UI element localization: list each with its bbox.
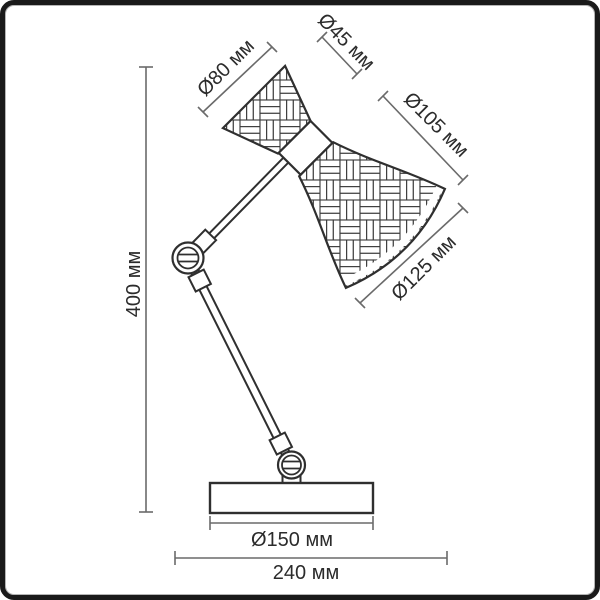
elbow-screw-icon: [178, 248, 199, 269]
dimension-neck: Ø45 мм: [313, 9, 379, 79]
lamp-arm: [185, 158, 295, 467]
dimension-label-depth: 240 мм: [273, 562, 339, 584]
dimension-depth: 240 мм: [175, 551, 447, 584]
drawing-canvas: 400 мм Ø80 мм Ø45 мм Ø105 мм: [0, 0, 600, 600]
dimension-label-neck: Ø45 мм: [313, 9, 379, 75]
dimension-base: Ø150 мм: [210, 516, 373, 551]
base-joint: [278, 452, 305, 479]
dimension-height: 400 мм: [123, 67, 153, 512]
lamp-dimension-drawing: 400 мм Ø80 мм Ø45 мм Ø105 мм: [0, 0, 600, 600]
lamp-base: [210, 483, 373, 513]
base-screw-icon: [282, 456, 301, 475]
dimension-label-base: Ø150 мм: [251, 529, 333, 551]
elbow-joint: [173, 243, 204, 274]
dimension-label-height: 400 мм: [123, 251, 145, 317]
